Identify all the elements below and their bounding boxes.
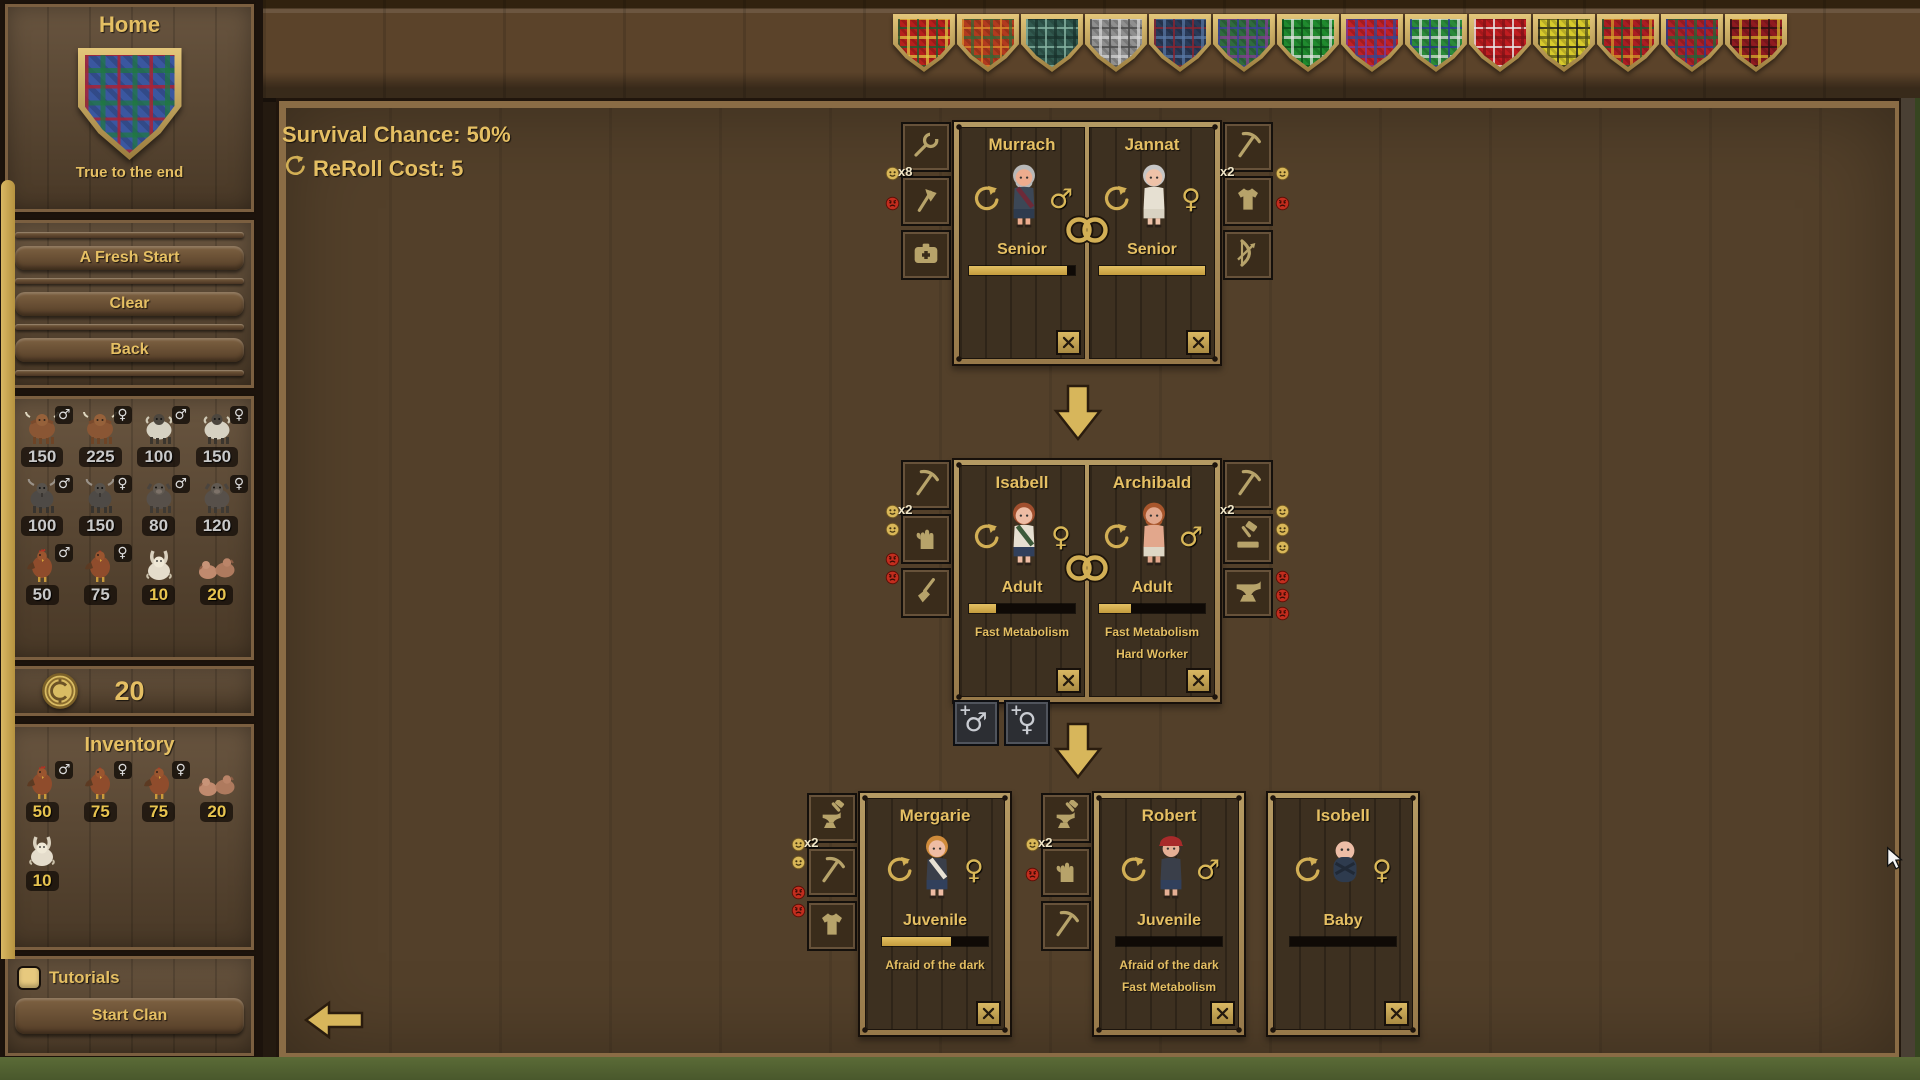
person-name: Jannat (1125, 135, 1180, 155)
item-multiplier: x8 (898, 164, 912, 179)
shield-tartan (1346, 19, 1398, 67)
shield-tartan (1602, 19, 1654, 67)
bow-icon (1232, 237, 1264, 274)
item-multiplier: x2 (1038, 835, 1052, 850)
count-badge: 150 (21, 447, 63, 467)
skill-slot (807, 847, 857, 897)
livestock-item-hen-female[interactable]: ♀75 (71, 765, 129, 822)
count-badge: 80 (142, 516, 175, 536)
grass-ground (0, 1057, 1920, 1080)
shield-tartan (1410, 19, 1462, 67)
piglets-icon (194, 548, 240, 584)
person-name: Robert (1142, 806, 1197, 826)
tutorials-checkbox[interactable] (19, 968, 39, 988)
livestock-item-pig-male[interactable]: ♂80 (130, 479, 188, 536)
trait-list: Afraid of the dark (885, 958, 984, 972)
age-progress-fill (882, 937, 951, 946)
plus-icon: + (959, 701, 972, 719)
child-block-robert: x2Robert♂JuvenileAfraid of the darkFast … (1024, 791, 1246, 1037)
age-stage-label: Juvenile (1137, 912, 1201, 930)
skill-slot (901, 176, 951, 226)
item-multiplier: x2 (804, 835, 818, 850)
age-progress-bar (1116, 937, 1222, 946)
age-progress-bar (969, 604, 1075, 613)
item-multiplier: x2 (898, 502, 912, 517)
reroll-cost-text: ReRoll Cost: 5 (282, 154, 511, 184)
shield-tartan (1154, 19, 1206, 67)
mood-happy-icon (791, 855, 806, 870)
remove-person-button[interactable] (1186, 330, 1211, 355)
age-progress-bar (1099, 604, 1205, 613)
top-wood-beam (263, 0, 1920, 102)
pickaxe-icon (910, 467, 942, 504)
shield-tartan (1474, 19, 1526, 67)
tunic-icon (816, 908, 848, 945)
shield-tartan (1666, 19, 1718, 67)
clan-motto: True to the end (5, 164, 254, 181)
livestock-item-sheep-female[interactable]: ♀150 (188, 410, 246, 467)
person-avatar (1148, 834, 1194, 906)
reroll-icon (282, 154, 306, 184)
generation-1-couple: x8Murrach♂SeniorJannat♀Seniorx2 (884, 120, 1290, 366)
female-symbol-icon: ♀ (1048, 522, 1075, 553)
trait-label: Fast Metabolism (1122, 980, 1216, 994)
marriage-rings-icon (1058, 214, 1116, 246)
add-child-female-button[interactable]: +♀ (1004, 700, 1050, 746)
count-badge: 75 (84, 585, 117, 605)
clan-tartan-shield-8[interactable] (1341, 14, 1403, 72)
age-progress-fill (969, 604, 996, 613)
anvil-icon (1232, 575, 1264, 612)
skill-slot: x2 (1223, 460, 1273, 510)
shield-tartan (1090, 19, 1142, 67)
inventory-grid: ♂50♀75♀752010 (5, 757, 254, 899)
scrollbar-thumb[interactable] (1, 180, 15, 959)
menu-button-a-fresh-start[interactable]: A Fresh Start (15, 246, 244, 270)
starting-items-panel-left: x2 (807, 793, 857, 951)
inventory-section: Inventory ♂50♀75♀752010 (3, 722, 256, 952)
age-progress-bar (882, 937, 988, 946)
person-avatar (914, 834, 960, 906)
shield-tartan (962, 19, 1014, 67)
age-progress-fill (1099, 604, 1131, 613)
livestock-section: ♂150♀225♂100♀150♂100♀150♂80♀120♂50♀75102… (3, 394, 256, 662)
female-symbol-icon: ♀ (1369, 855, 1396, 886)
female-symbol-icon: ♀ (961, 855, 988, 886)
livestock-item-goat-male[interactable]: ♂100 (13, 479, 71, 536)
person-card-robert: Robert♂JuvenileAfraid of the darkFast Me… (1099, 798, 1239, 1030)
descent-arrow-icon (1053, 722, 1103, 780)
clan-tartan-shield-6[interactable] (1213, 14, 1275, 72)
count-badge: 20 (200, 585, 233, 605)
skill-slot: x2 (807, 793, 857, 843)
age-stage-label: Adult (1002, 579, 1043, 597)
starting-items-panel-left: x2 (1041, 793, 1091, 951)
clan-tartan-shield-14[interactable] (1725, 14, 1787, 72)
skill-slot: x2 (1223, 122, 1273, 172)
axe-icon (910, 183, 942, 220)
pickaxe-icon (1050, 908, 1082, 945)
person-name: Isabell (996, 473, 1049, 493)
age-stage-label: Baby (1323, 912, 1362, 930)
currency-section: 20 (3, 664, 256, 718)
descent-arrow-icon (1053, 384, 1103, 442)
skill-slot (1041, 901, 1091, 951)
person-avatar (1322, 834, 1368, 906)
livestock-item-hen-female[interactable]: ♀75 (130, 765, 188, 822)
person-card-isobell: Isobell♀Baby (1273, 798, 1413, 1030)
broom-icon (910, 575, 942, 612)
survival-chance-text: Survival Chance: 50% (282, 122, 511, 148)
mood-happy-icon (1275, 166, 1290, 181)
inventory-title: Inventory (5, 724, 254, 757)
home-section: Home True to the end (3, 2, 256, 214)
pickaxe-icon (1232, 467, 1264, 504)
mood-indicators-left (790, 791, 806, 918)
start-clan-button[interactable]: Start Clan (15, 998, 244, 1034)
trait-list: Fast MetabolismHard Worker (1105, 625, 1199, 661)
sidebar: Home True to the end A Fresh StartClearB… (0, 0, 263, 1058)
reroll-person-button[interactable] (1117, 855, 1147, 885)
person-avatar (1131, 501, 1177, 573)
mood-upset-icon (791, 885, 806, 900)
clan-tartan-shield-row (893, 14, 1787, 72)
reroll-person-button[interactable] (970, 522, 1000, 552)
count-badge: 225 (79, 447, 121, 467)
livestock-item-pig-female[interactable]: ♀120 (188, 479, 246, 536)
person-name: Archibald (1113, 473, 1191, 493)
avatar-row: ♂ (1117, 828, 1222, 912)
mood-happy-icon (1275, 504, 1290, 519)
age-stage-label: Adult (1132, 579, 1173, 597)
mood-happy-icon (1275, 522, 1290, 537)
mood-upset-icon (791, 903, 806, 918)
age-stage-label: Juvenile (903, 912, 967, 930)
livestock-item-rooster-male[interactable]: ♂50 (13, 548, 71, 605)
female-symbol-icon: ♀ (230, 475, 248, 493)
pickaxe-icon (816, 854, 848, 891)
skill-slot (901, 230, 951, 280)
child-card: Robert♂JuvenileAfraid of the darkFast Me… (1092, 791, 1246, 1037)
reroll-person-button[interactable] (1291, 855, 1321, 885)
divider-rail (15, 232, 244, 238)
livestock-item-rabbit[interactable]: 10 (13, 834, 71, 891)
piglets-icon (194, 765, 240, 801)
livestock-item-rooster-male[interactable]: ♂50 (13, 765, 71, 822)
count-badge: 100 (21, 516, 63, 536)
shield-tartan (1026, 19, 1078, 67)
count-badge: 20 (200, 802, 233, 822)
world-edge (1915, 98, 1920, 1080)
trait-list: Afraid of the darkFast Metabolism (1119, 958, 1218, 994)
clan-tartan-shield-7[interactable] (1277, 14, 1339, 72)
age-progress-bar (1290, 937, 1396, 946)
count-badge: 10 (142, 585, 175, 605)
mood-happy-icon (1275, 540, 1290, 555)
menu-button-clear[interactable]: Clear (15, 292, 244, 316)
age-progress-fill (1099, 266, 1205, 275)
livestock-item-piglets[interactable]: 20 (188, 765, 246, 822)
skill-slot (1041, 847, 1091, 897)
shield-tartan (1538, 19, 1590, 67)
mallet-icon (1232, 521, 1264, 558)
count-badge: 75 (142, 802, 175, 822)
remove-person-button[interactable] (1056, 668, 1081, 693)
anvil-hammer-icon (1050, 800, 1082, 837)
skill-slot: x8 (901, 122, 951, 172)
count-badge: 10 (26, 871, 59, 891)
skill-slot (1223, 568, 1273, 618)
age-stage-label: Senior (997, 241, 1047, 259)
clan-tartan-shield-10[interactable] (1469, 14, 1531, 72)
mood-happy-icon (885, 522, 900, 537)
count-badge: 75 (84, 802, 117, 822)
mood-upset-icon (1025, 867, 1040, 882)
rabbit-icon (19, 834, 65, 870)
livestock-item-piglets[interactable]: 20 (188, 548, 246, 605)
mood-upset-icon (1275, 570, 1290, 585)
avatar-row: ♀ (1291, 828, 1396, 912)
mood-indicators-right (1274, 458, 1290, 621)
add-child-buttons: +♂+♀ (953, 700, 1050, 746)
trait-label: Fast Metabolism (975, 625, 1069, 639)
clan-tartan-shield-3[interactable] (1021, 14, 1083, 72)
clan-tartan-shield-2[interactable] (957, 14, 1019, 72)
child-block-mergarie: x2Mergarie♀JuvenileAfraid of the dark (790, 791, 1012, 1037)
age-progress-bar (969, 266, 1075, 275)
skill-slot (1223, 230, 1273, 280)
male-symbol-icon: ♂ (1195, 855, 1222, 886)
item-multiplier: x2 (1220, 164, 1234, 179)
pickaxe-icon (1232, 129, 1264, 166)
divider-rail (15, 278, 244, 284)
trait-label: Afraid of the dark (885, 958, 984, 972)
shield-tartan (1730, 19, 1782, 67)
starting-items-panel-left: x8 (901, 122, 951, 280)
shield-tartan (898, 19, 950, 67)
female-symbol-icon: ♀ (230, 406, 248, 424)
wrench-icon (910, 129, 942, 166)
couple-card: Isabell♀AdultFast MetabolismArchibald♂Ad… (952, 458, 1222, 704)
page-title: Home (5, 4, 254, 38)
plus-icon: + (1010, 701, 1023, 719)
male-symbol-icon: ♂ (1048, 184, 1075, 215)
person-name: Murrach (988, 135, 1055, 155)
mood-upset-icon (1275, 196, 1290, 211)
tutorials-label: Tutorials (49, 968, 120, 988)
skill-slot (1223, 514, 1273, 564)
trait-label: Afraid of the dark (1119, 958, 1218, 972)
first-aid-kit-icon (910, 237, 942, 274)
age-progress-fill (969, 266, 1067, 275)
remove-person-button[interactable] (976, 1001, 1001, 1026)
person-avatar (1001, 163, 1047, 235)
skill-slot (901, 514, 951, 564)
mouse-cursor (1884, 846, 1906, 872)
trait-list: Fast Metabolism (975, 625, 1069, 639)
mood-upset-icon (885, 196, 900, 211)
child-block-isobell: Isobell♀Baby (1266, 791, 1420, 1037)
person-name: Mergarie (900, 806, 971, 826)
back-arrow-button[interactable] (303, 1000, 365, 1040)
livestock-item-sheep-male[interactable]: ♂100 (130, 410, 188, 467)
mood-upset-icon (885, 552, 900, 567)
generation-3-children: x2Mergarie♀JuvenileAfraid of the darkx2R… (790, 791, 1420, 1037)
starting-items-panel-right: x2 (1223, 122, 1273, 280)
coin-icon (41, 672, 79, 710)
menu-section: A Fresh StartClearBack (3, 218, 256, 390)
menu-button-back[interactable]: Back (15, 338, 244, 362)
divider-rail (15, 324, 244, 330)
clan-shield-emblem (78, 48, 182, 160)
clan-tartan-shield-4[interactable] (1085, 14, 1147, 72)
livestock-item-hen-female[interactable]: ♀75 (71, 548, 129, 605)
clan-tartan-shield-12[interactable] (1597, 14, 1659, 72)
person-avatar (1131, 163, 1177, 235)
person-card-mergarie: Mergarie♀JuvenileAfraid of the dark (865, 798, 1005, 1030)
reroll-person-button[interactable] (1100, 522, 1130, 552)
mood-upset-icon (1275, 606, 1290, 621)
divider-rail (15, 370, 244, 376)
mood-upset-icon (1275, 588, 1290, 603)
female-symbol-icon: ♀ (1178, 184, 1205, 215)
reroll-person-button[interactable] (970, 184, 1000, 214)
start-section: Tutorials Start Clan (3, 954, 256, 1058)
menu-buttons: A Fresh StartClearBack (5, 220, 254, 388)
shield-tartan (1282, 19, 1334, 67)
clan-setup-screen: Home True to the end A Fresh StartClearB… (0, 0, 1920, 1080)
child-card: Mergarie♀JuvenileAfraid of the dark (858, 791, 1012, 1037)
skill-slot (807, 901, 857, 951)
person-avatar (1001, 501, 1047, 573)
skill-slot: x2 (901, 460, 951, 510)
clan-tartan-shield-9[interactable] (1405, 14, 1467, 72)
add-child-male-button[interactable]: +♂ (953, 700, 999, 746)
mood-indicators-right (1274, 120, 1290, 211)
trait-label: Hard Worker (1116, 647, 1188, 661)
mood-indicators-left (884, 458, 900, 585)
count-badge: 50 (26, 802, 59, 822)
reroll-person-button[interactable] (883, 855, 913, 885)
couple-card: Murrach♂SeniorJannat♀Senior (952, 120, 1222, 366)
age-stage-label: Senior (1127, 241, 1177, 259)
livestock-item-highland-cow-male[interactable]: ♂150 (13, 410, 71, 467)
count-badge: 120 (196, 516, 238, 536)
livestock-item-rabbit[interactable]: 10 (130, 548, 188, 605)
skill-slot (1223, 176, 1273, 226)
age-progress-bar (1099, 266, 1205, 275)
starting-items-panel-left: x2 (901, 460, 951, 618)
item-multiplier: x2 (1220, 502, 1234, 517)
marriage-rings-icon (1058, 552, 1116, 584)
clan-tartan-shield-13[interactable] (1661, 14, 1723, 72)
remove-person-button[interactable] (1210, 1001, 1235, 1026)
child-card: Isobell♀Baby (1266, 791, 1420, 1037)
remove-person-button[interactable] (1384, 1001, 1409, 1026)
starting-items-panel-right: x2 (1223, 460, 1273, 618)
generation-2-couple: x2Isabell♀AdultFast MetabolismArchibald♂… (884, 458, 1290, 704)
reroll-person-button[interactable] (1100, 184, 1130, 214)
glove-icon (1050, 854, 1082, 891)
rabbit-icon (136, 548, 182, 584)
person-name: Isobell (1316, 806, 1370, 826)
shield-tartan (1218, 19, 1270, 67)
male-symbol-icon: ♂ (1178, 522, 1205, 553)
stats-block: Survival Chance: 50% ReRoll Cost: 5 (282, 122, 511, 190)
skill-slot (901, 568, 951, 618)
count-badge: 50 (26, 585, 59, 605)
tunic-icon (1232, 183, 1264, 220)
count-badge: 100 (137, 447, 179, 467)
livestock-item-goat-female[interactable]: ♀150 (71, 479, 129, 536)
livestock-item-highland-cow-female[interactable]: ♀225 (71, 410, 129, 467)
livestock-grid: ♂150♀225♂100♀150♂100♀150♂80♀120♂50♀75102… (5, 396, 254, 613)
remove-person-button[interactable] (1056, 330, 1081, 355)
avatar-row: ♀ (883, 828, 988, 912)
clan-tartan-shield-5[interactable] (1149, 14, 1211, 72)
mood-upset-icon (885, 570, 900, 585)
remove-person-button[interactable] (1186, 668, 1211, 693)
count-badge: 150 (196, 447, 238, 467)
trait-label: Fast Metabolism (1105, 625, 1199, 639)
count-badge: 150 (79, 516, 121, 536)
clan-tartan-shield-1[interactable] (893, 14, 955, 72)
anvil-hammer-icon (816, 800, 848, 837)
skill-slot: x2 (1041, 793, 1091, 843)
clan-tartan (85, 55, 175, 153)
glove-icon (910, 521, 942, 558)
clan-tartan-shield-11[interactable] (1533, 14, 1595, 72)
